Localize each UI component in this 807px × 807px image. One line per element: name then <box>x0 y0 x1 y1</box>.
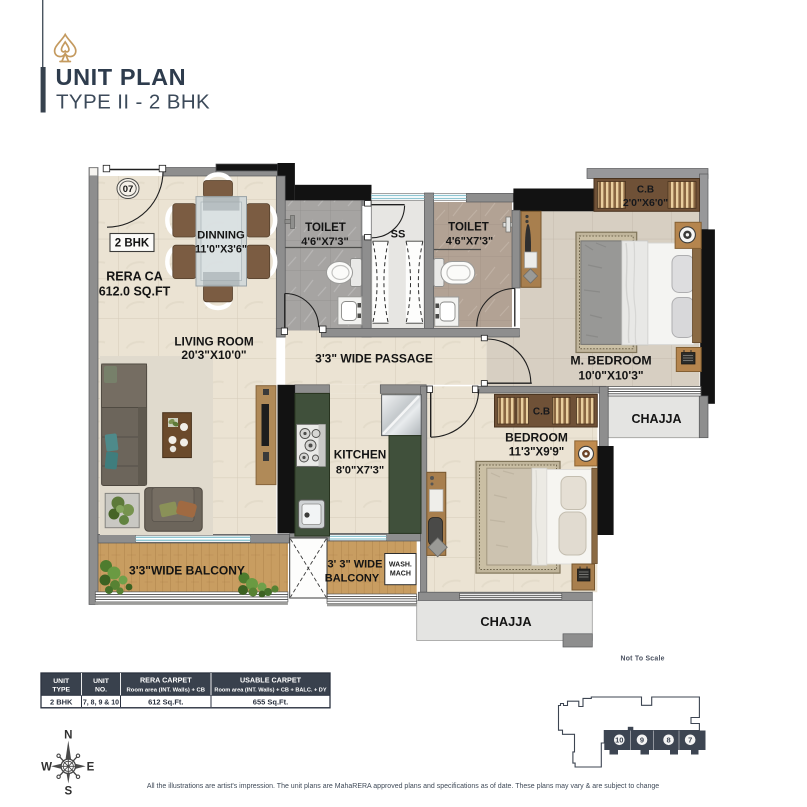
svg-text:7, 8, 9 & 10: 7, 8, 9 & 10 <box>83 699 119 706</box>
svg-text:MACH: MACH <box>390 571 411 578</box>
svg-text:10'0"X10'3": 10'0"X10'3" <box>578 369 643 383</box>
svg-text:2'0"X6'0": 2'0"X6'0" <box>623 197 668 209</box>
svg-text:UNIT PLAN: UNIT PLAN <box>56 64 187 90</box>
svg-text:10: 10 <box>615 736 623 745</box>
svg-text:07: 07 <box>123 184 134 195</box>
svg-text:4'6"X7'3": 4'6"X7'3" <box>446 236 493 248</box>
svg-text:W: W <box>41 761 52 773</box>
svg-text:NO.: NO. <box>95 687 107 694</box>
svg-text:C.B: C.B <box>637 185 654 196</box>
svg-text:M. BEDROOM: M. BEDROOM <box>570 354 651 368</box>
svg-text:4'6"X7'3": 4'6"X7'3" <box>301 236 348 248</box>
svg-text:UNIT: UNIT <box>53 678 70 685</box>
svg-text:WASH.: WASH. <box>389 562 412 569</box>
svg-text:CHAJJA: CHAJJA <box>631 412 681 426</box>
svg-text:612.0 SQ.FT: 612.0 SQ.FT <box>99 285 171 299</box>
svg-text:BEDROOM: BEDROOM <box>505 431 568 445</box>
svg-text:UNIT: UNIT <box>93 678 110 685</box>
svg-text:TOILET: TOILET <box>448 222 489 234</box>
svg-text:TYPE: TYPE <box>52 687 70 694</box>
svg-text:N: N <box>64 730 72 742</box>
svg-text:E: E <box>87 761 95 773</box>
svg-text:TOILET: TOILET <box>305 222 346 234</box>
svg-text:RERA CA: RERA CA <box>106 270 162 284</box>
svg-text:DINNING: DINNING <box>197 230 245 242</box>
svg-text:Room area (INT. Walls) + CB +: Room area (INT. Walls) + CB + BALC. + DY <box>214 688 326 694</box>
svg-text:LIVING ROOM: LIVING ROOM <box>174 335 253 349</box>
svg-text:C.B: C.B <box>533 407 550 418</box>
svg-text:TYPE II - 2 BHK: TYPE II - 2 BHK <box>56 91 210 114</box>
svg-text:S: S <box>64 786 72 798</box>
svg-text:Not To Scale: Not To Scale <box>621 656 665 663</box>
svg-text:SS: SS <box>391 229 406 241</box>
svg-text:7: 7 <box>688 736 692 745</box>
svg-text:3' 3" WIDE: 3' 3" WIDE <box>328 559 383 571</box>
svg-text:3'3" WIDE PASSAGE: 3'3" WIDE PASSAGE <box>315 352 433 366</box>
svg-text:BALCONY: BALCONY <box>325 573 380 585</box>
svg-text:11'0"X3'6": 11'0"X3'6" <box>195 244 247 256</box>
svg-text:9: 9 <box>640 736 644 745</box>
svg-text:USABLE CARPET: USABLE CARPET <box>240 676 302 685</box>
svg-text:2 BHK: 2 BHK <box>115 238 150 250</box>
svg-text:11'3"X9'9": 11'3"X9'9" <box>509 447 564 459</box>
svg-text:All the illustrations are arti: All the illustrations are artist's impre… <box>147 783 659 790</box>
svg-text:655 Sq.Ft.: 655 Sq.Ft. <box>253 697 288 706</box>
svg-text:KITCHEN: KITCHEN <box>334 448 386 462</box>
svg-text:Room area (INT. Walls) + CB: Room area (INT. Walls) + CB <box>127 688 206 694</box>
svg-text:612 Sq.Ft.: 612 Sq.Ft. <box>148 697 183 706</box>
svg-text:20'3"X10'0": 20'3"X10'0" <box>181 348 246 362</box>
svg-text:RERA CARPET: RERA CARPET <box>140 676 192 685</box>
svg-text:8'0"X7'3": 8'0"X7'3" <box>336 465 384 477</box>
svg-text:8: 8 <box>667 736 671 745</box>
svg-text:CHAJJA: CHAJJA <box>480 614 531 629</box>
svg-text:2 BHK: 2 BHK <box>50 697 73 706</box>
svg-text:3'3"WIDE BALCONY: 3'3"WIDE BALCONY <box>129 564 245 578</box>
